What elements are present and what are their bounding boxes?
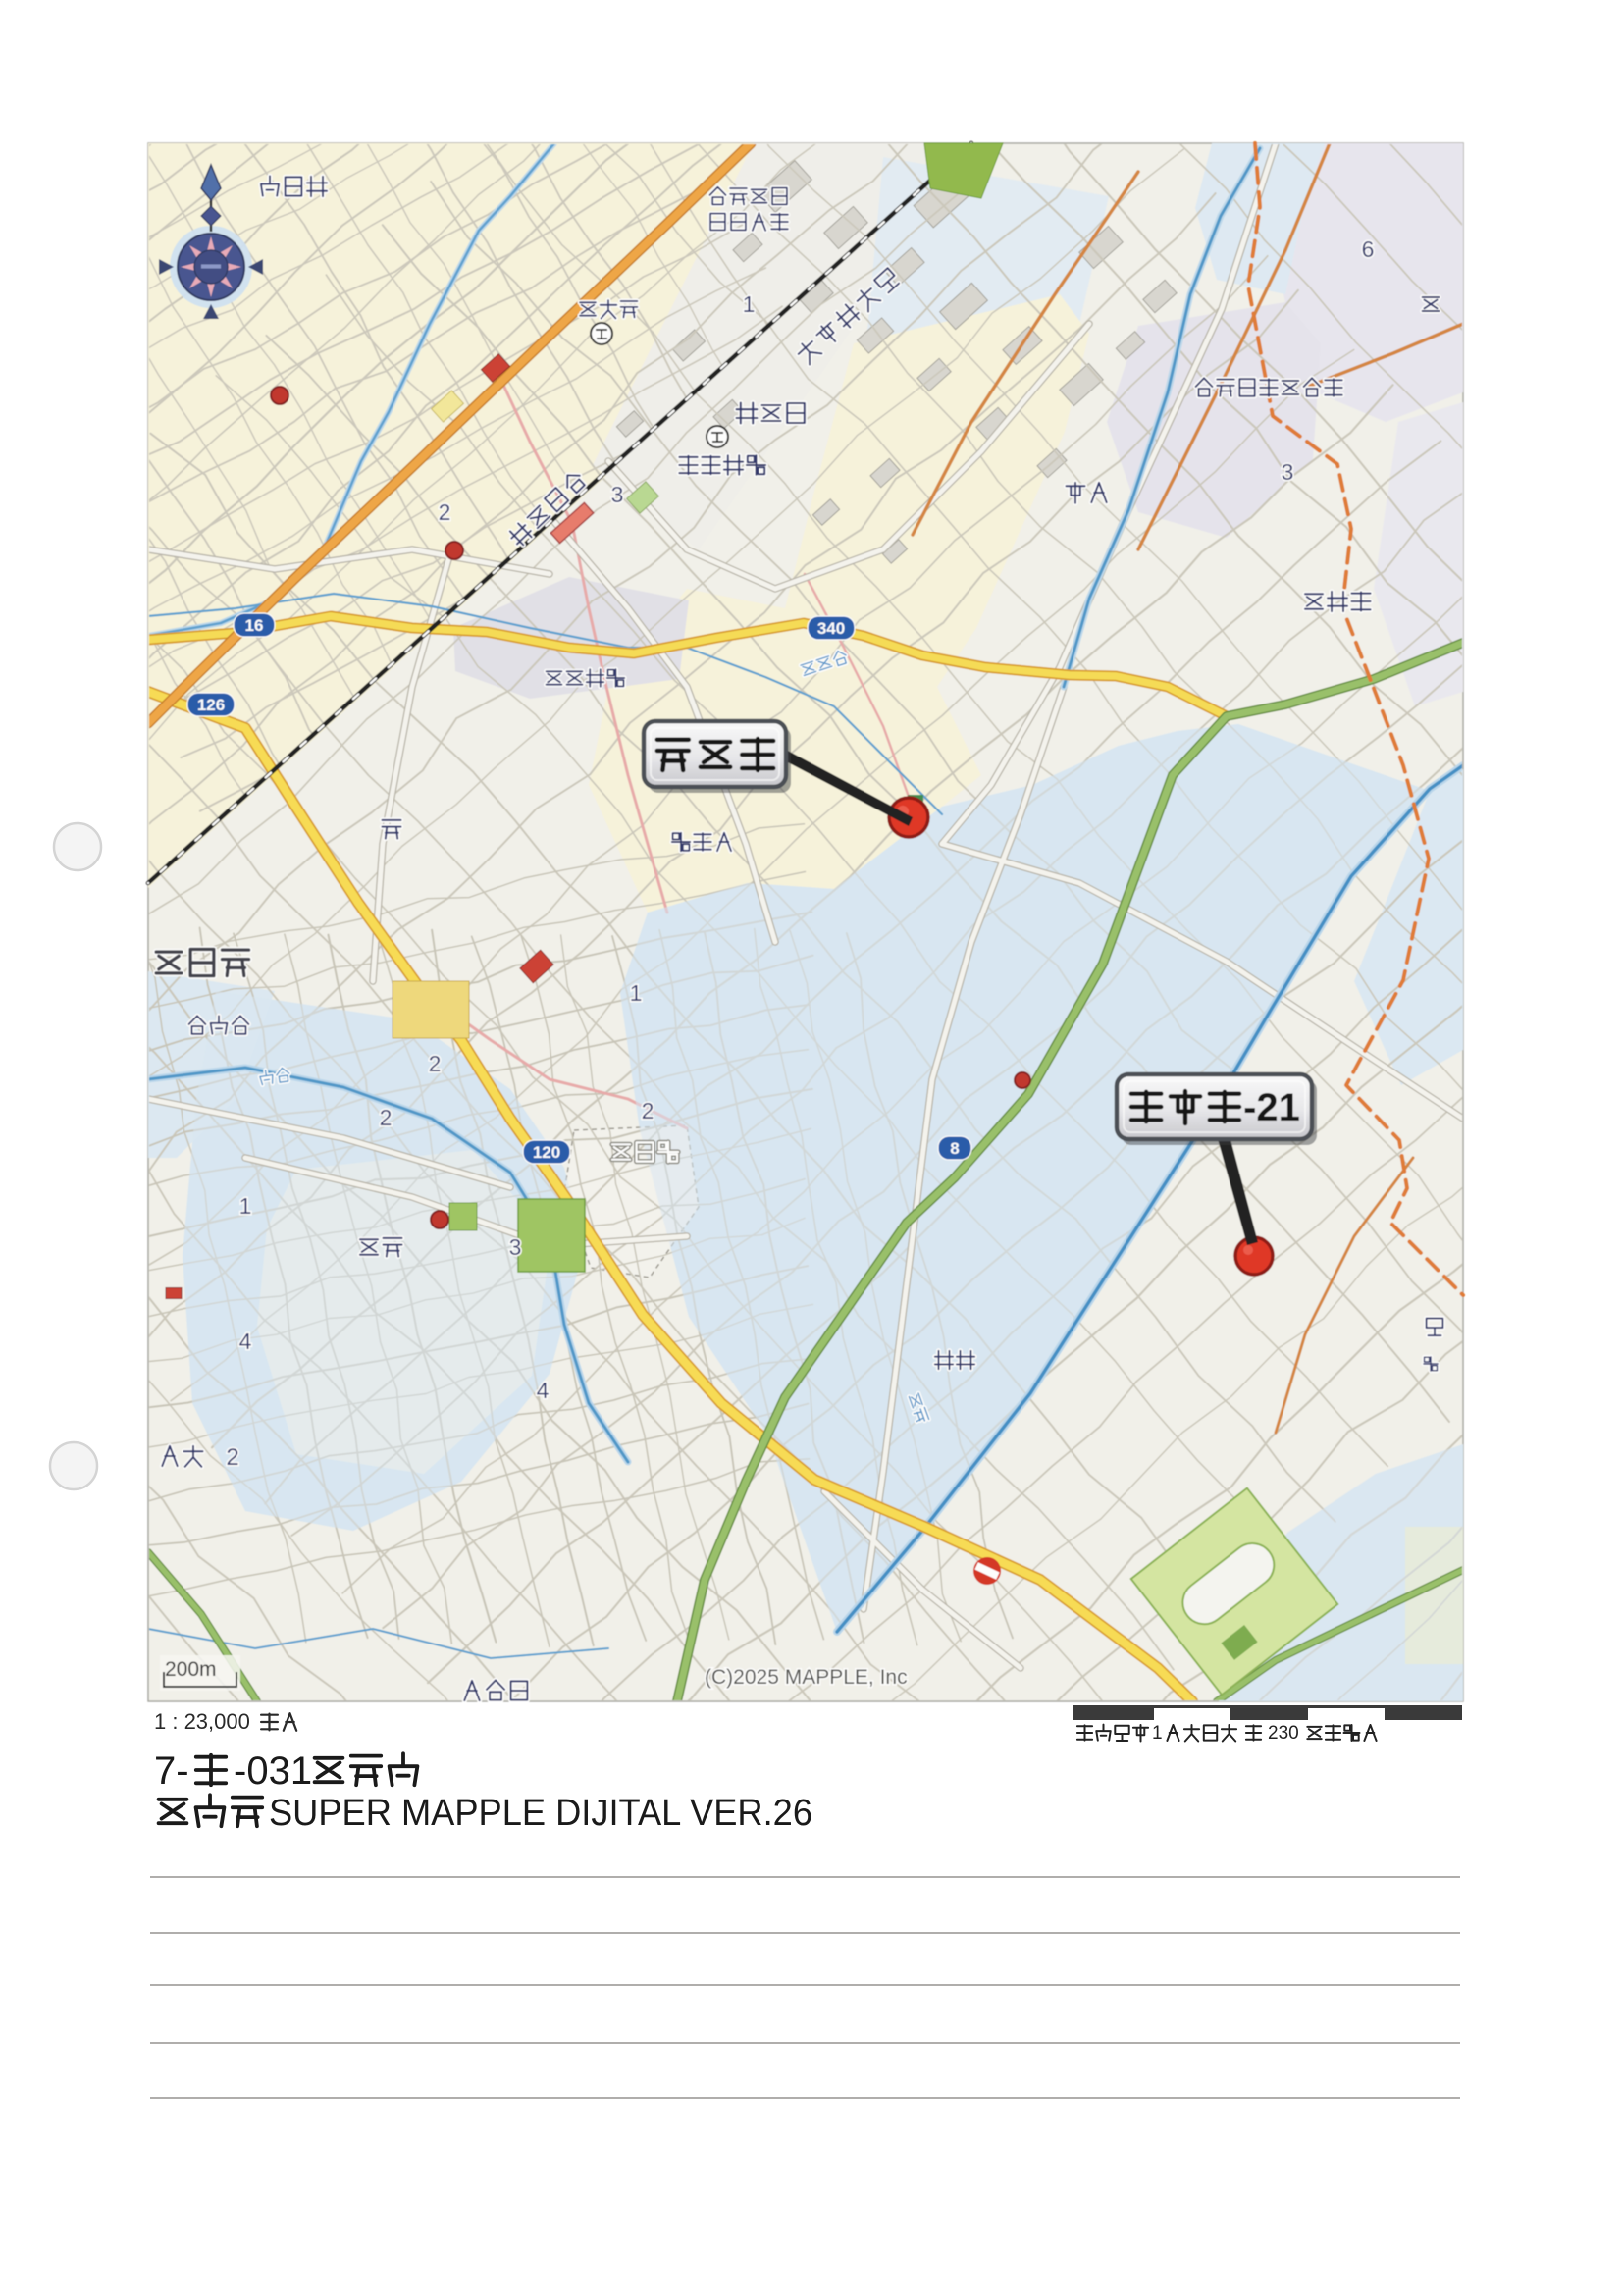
svg-text:SUPER MAPPLE DIJITAL VER.26: SUPER MAPPLE DIJITAL VER.26 bbox=[269, 1793, 812, 1834]
svg-text:230: 230 bbox=[1268, 1723, 1299, 1744]
svg-text:1 : 23,000: 1 : 23,000 bbox=[154, 1709, 250, 1734]
svg-text:1: 1 bbox=[1152, 1723, 1163, 1744]
svg-text:7-: 7- bbox=[154, 1749, 189, 1793]
svg-text:-031: -031 bbox=[234, 1749, 312, 1793]
